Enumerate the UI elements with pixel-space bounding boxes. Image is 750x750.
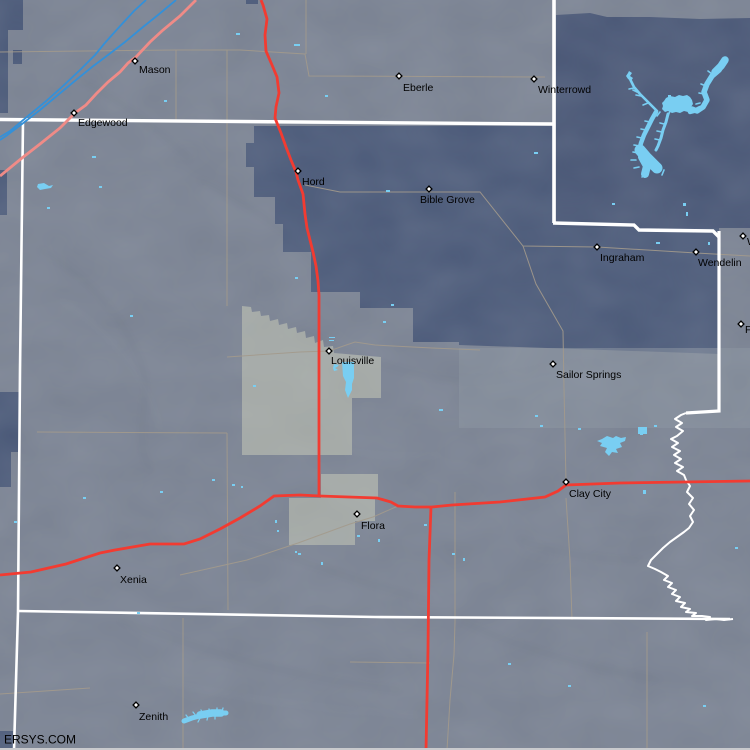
svg-text:Zenith: Zenith bbox=[139, 711, 168, 723]
svg-text:Mason: Mason bbox=[139, 64, 171, 76]
svg-text:Xenia: Xenia bbox=[120, 574, 147, 586]
svg-text:F: F bbox=[745, 324, 750, 336]
svg-text:Sailor Springs: Sailor Springs bbox=[556, 369, 621, 381]
svg-text:Wendelin: Wendelin bbox=[698, 257, 742, 269]
svg-text:Winterrowd: Winterrowd bbox=[538, 84, 591, 96]
svg-text:Hord: Hord bbox=[302, 176, 325, 188]
svg-text:Ingraham: Ingraham bbox=[600, 252, 645, 264]
svg-text:Louisville: Louisville bbox=[331, 355, 374, 367]
svg-text:Flora: Flora bbox=[361, 520, 385, 532]
svg-text:Bible Grove: Bible Grove bbox=[420, 194, 475, 206]
svg-text:Clay City: Clay City bbox=[569, 488, 612, 500]
svg-text:Eberle: Eberle bbox=[403, 82, 434, 94]
svg-text:ERSYS.COM: ERSYS.COM bbox=[4, 733, 76, 747]
svg-text:Edgewood: Edgewood bbox=[78, 117, 128, 129]
